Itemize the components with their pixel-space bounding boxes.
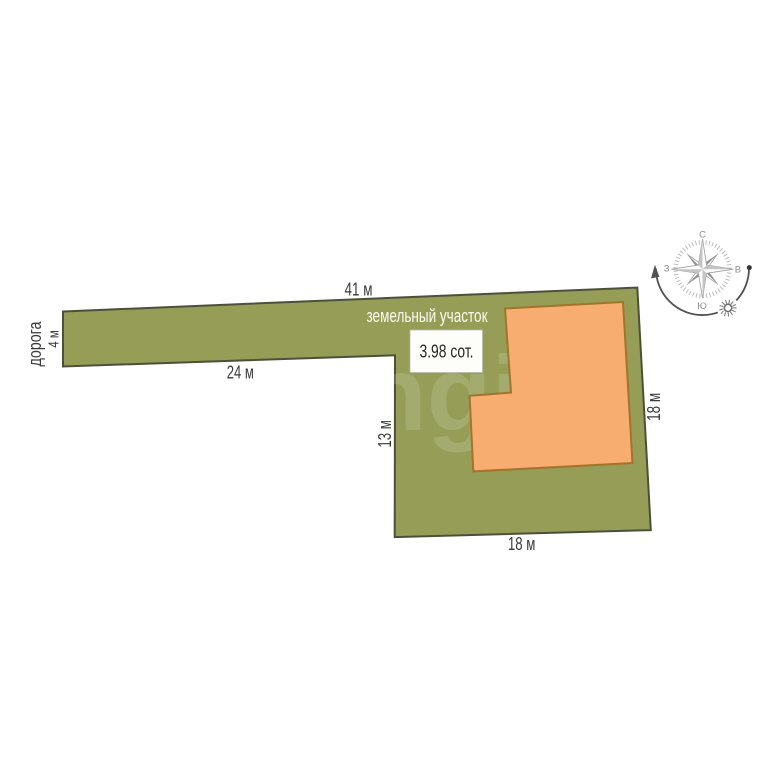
- svg-text:18 м: 18 м: [508, 534, 536, 554]
- svg-text:земельный участок: земельный участок: [367, 306, 488, 326]
- svg-text:С: С: [699, 230, 706, 241]
- svg-text:41 м: 41 м: [345, 280, 373, 300]
- svg-text:13 м: 13 м: [375, 420, 395, 448]
- svg-text:З: З: [664, 264, 670, 275]
- svg-text:4 м: 4 м: [45, 330, 62, 348]
- svg-text:3.98 сот.: 3.98 сот.: [420, 341, 474, 362]
- svg-text:дорога: дорога: [25, 321, 45, 367]
- svg-text:Ю: Ю: [697, 301, 707, 312]
- svg-text:24 м: 24 м: [227, 362, 254, 382]
- svg-text:18 м: 18 м: [644, 393, 664, 421]
- svg-text:В: В: [735, 265, 741, 276]
